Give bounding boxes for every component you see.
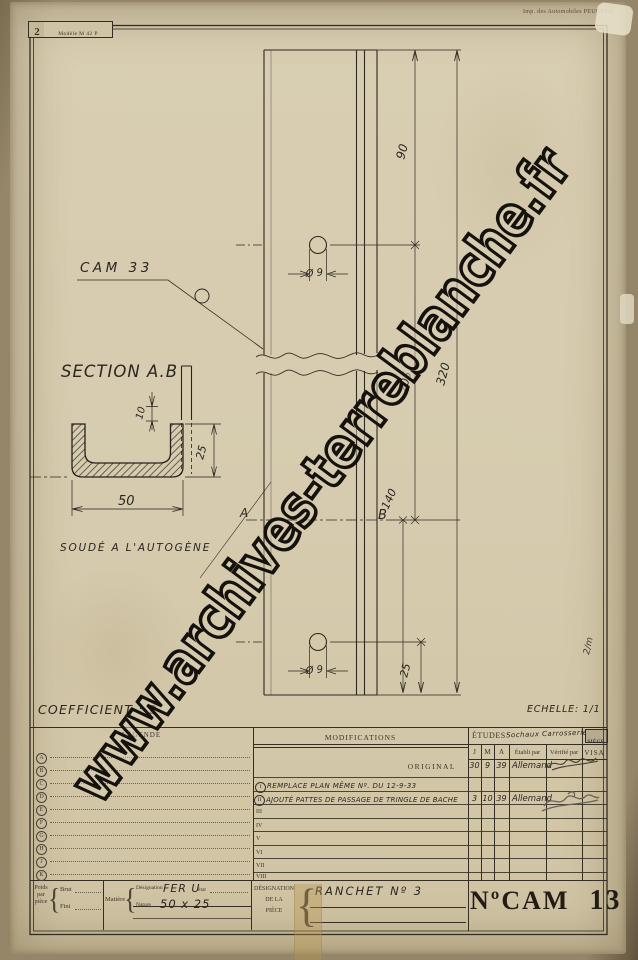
section-mark-b: B xyxy=(378,508,387,523)
dim-320: 320 xyxy=(433,361,453,387)
tab-patte xyxy=(182,366,192,420)
part-label: CAM 33 xyxy=(80,260,153,276)
tape-stain xyxy=(620,294,634,324)
dim-section-25: 25 xyxy=(193,444,209,461)
weld-leader xyxy=(200,482,271,578)
tape-stain xyxy=(294,884,322,960)
scanned-drawing-page: Imp. des Automobiles PEUGEOT. 2 Modèle M… xyxy=(0,0,638,960)
dim-tab-10: 10 xyxy=(134,406,148,421)
break-line xyxy=(256,370,378,376)
tape-stain xyxy=(594,2,634,37)
hole-top xyxy=(310,237,327,254)
dim-25-bottom: 25 xyxy=(397,662,413,679)
section-mark-a: A xyxy=(239,506,248,520)
scale-note: ECHELLE: 1/1 xyxy=(527,704,600,715)
pencil-note: 2/m xyxy=(582,636,595,655)
coefficient-note: COEFFICIENT : 2 xyxy=(38,702,158,717)
linework: CAM 33 SECTION A.B SOUDÉ A L'AUTOGÈNE CO… xyxy=(0,0,638,960)
dimension-lines xyxy=(288,50,461,695)
section-title: SECTION A.B xyxy=(61,362,178,381)
weld-note: SOUDÉ A L'AUTOGÈNE xyxy=(60,541,211,554)
dim-hole-bottom: Ø 9 xyxy=(304,663,324,677)
hole-bottom xyxy=(310,634,327,651)
channel-section xyxy=(72,424,183,477)
break-line xyxy=(256,353,378,359)
dim-205: 205 xyxy=(396,370,414,394)
section-view xyxy=(72,366,221,516)
main-bar xyxy=(256,50,378,695)
dim-section-50: 50 xyxy=(118,494,135,509)
part-label-leader xyxy=(77,280,263,349)
dim-hole-top: Ø 9 xyxy=(304,266,324,280)
dim-90: 90 xyxy=(393,142,411,161)
